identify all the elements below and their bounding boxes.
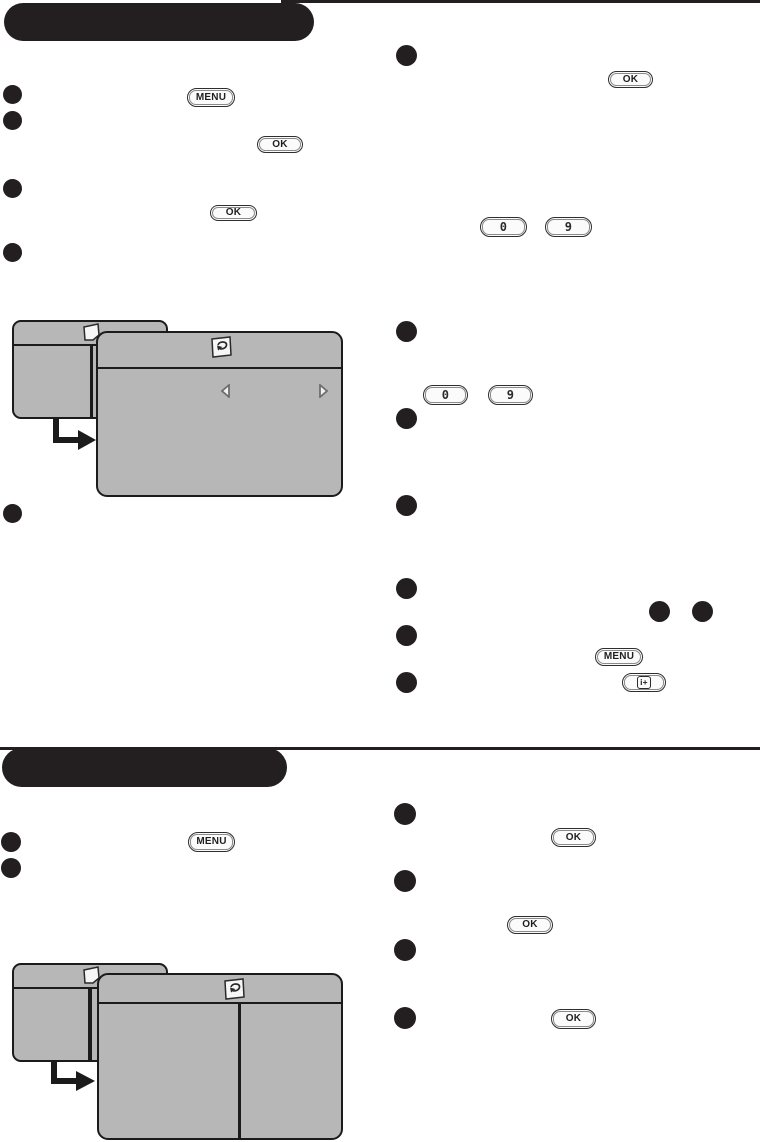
left-arrow-icon <box>221 384 230 398</box>
ok-button: OK <box>551 828 596 847</box>
ok-button-label: OK <box>553 830 594 845</box>
menu-button: MENU <box>188 832 235 852</box>
inline-bullet <box>692 601 713 622</box>
step-bullet <box>396 495 417 516</box>
step-bullet <box>394 939 416 961</box>
menu-screen-front-panel <box>96 331 343 497</box>
info-icon: i+ <box>624 675 664 690</box>
ok-button: OK <box>507 916 553 934</box>
digit-9-label: 9 <box>547 219 590 235</box>
flow-arrow-icon <box>50 1062 96 1094</box>
menu-button-label: MENU <box>597 650 641 664</box>
step-bullet <box>396 578 417 599</box>
menu-button-label: MENU <box>190 834 233 850</box>
section1-header-pill <box>4 3 314 41</box>
ok-button-label: OK <box>610 73 651 86</box>
ok-button: OK <box>608 71 653 88</box>
step-bullet <box>3 111 22 130</box>
ok-button: OK <box>551 1009 596 1029</box>
ok-button: OK <box>210 205 257 221</box>
step-bullet <box>1 858 21 878</box>
menu-header-divider <box>98 367 341 369</box>
step-bullet <box>3 179 22 198</box>
info-button: i+ <box>622 673 666 692</box>
install-icon <box>208 336 234 358</box>
digit-9-button: 9 <box>488 385 533 405</box>
manual-page: MENU OK OK OK 0 9 0 9 MENU i+ <box>0 0 760 1142</box>
menu-screen-front-panel <box>97 973 343 1140</box>
ok-button-label: OK <box>553 1011 594 1027</box>
section2-header-pill <box>2 748 287 787</box>
digit-0-label: 0 <box>482 219 525 235</box>
menu-button: MENU <box>187 88 235 107</box>
top-rule <box>281 0 760 3</box>
menu-column-divider <box>238 1002 241 1138</box>
install-icon <box>221 978 247 1000</box>
ok-button-label: OK <box>509 918 551 932</box>
flow-arrow-icon <box>52 419 97 453</box>
digit-9-label: 9 <box>490 387 531 403</box>
digit-0-label: 0 <box>425 387 466 403</box>
digit-0-button: 0 <box>480 217 527 237</box>
menu-column-divider <box>90 344 93 417</box>
ok-button-label: OK <box>259 138 301 151</box>
ok-button-label: OK <box>212 207 255 219</box>
digit-0-button: 0 <box>423 385 468 405</box>
info-button-label: i+ <box>637 676 651 689</box>
right-arrow-icon <box>319 384 328 398</box>
menu-header-divider <box>99 1002 341 1004</box>
ok-button: OK <box>257 136 303 153</box>
step-bullet <box>396 321 417 342</box>
menu-button: MENU <box>595 648 643 666</box>
step-bullet <box>396 45 417 66</box>
step-bullet <box>396 625 417 646</box>
step-bullet <box>396 672 417 693</box>
step-bullet <box>396 408 417 429</box>
inline-bullet <box>649 601 670 622</box>
step-bullet <box>3 85 22 104</box>
step-bullet <box>394 1007 416 1029</box>
step-bullet <box>1 832 21 852</box>
digit-9-button: 9 <box>545 217 592 237</box>
step-bullet <box>394 803 416 825</box>
step-bullet <box>3 504 22 523</box>
menu-column-divider <box>88 987 92 1060</box>
step-bullet <box>3 243 22 262</box>
step-bullet <box>394 870 416 892</box>
menu-button-label: MENU <box>189 90 233 105</box>
